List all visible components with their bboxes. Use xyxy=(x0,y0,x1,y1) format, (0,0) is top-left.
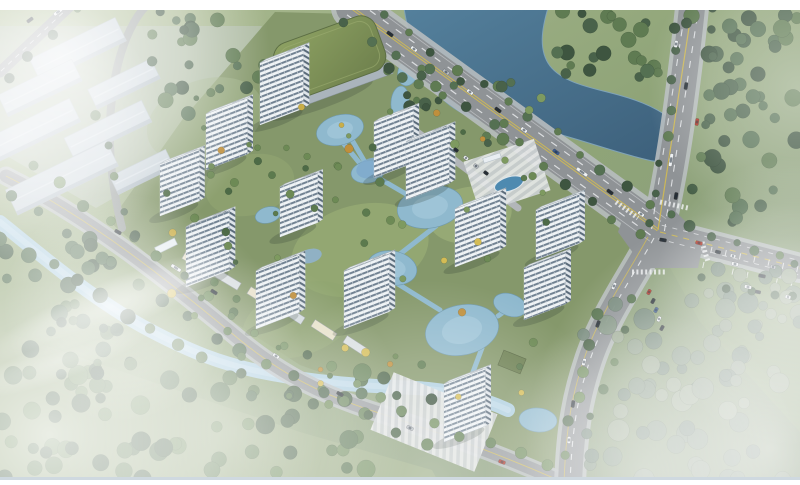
tower-side-windows xyxy=(318,169,323,222)
tree xyxy=(304,153,311,160)
tree xyxy=(636,229,646,239)
tree xyxy=(540,190,546,196)
frame-bottom-strip xyxy=(0,477,800,480)
tree xyxy=(668,211,676,219)
tree xyxy=(505,98,513,106)
frame-bottom-band xyxy=(0,480,800,485)
tree xyxy=(539,162,548,171)
tree xyxy=(636,55,646,65)
tree xyxy=(339,123,344,128)
tree xyxy=(414,79,424,89)
tree xyxy=(622,181,633,192)
tower-side-windows xyxy=(565,249,571,305)
tree xyxy=(583,18,598,33)
tree xyxy=(403,91,411,99)
tree xyxy=(507,78,516,87)
tower-side-windows xyxy=(500,188,506,250)
tree xyxy=(311,205,318,212)
frame-top-band xyxy=(0,0,800,10)
tree xyxy=(480,136,485,141)
tree xyxy=(384,63,395,74)
tree xyxy=(376,178,385,187)
tree xyxy=(369,144,377,152)
tree xyxy=(521,175,527,181)
tree xyxy=(345,144,354,153)
tower-side-windows xyxy=(449,122,455,184)
tree xyxy=(283,145,289,151)
tree xyxy=(583,64,596,77)
tree xyxy=(474,238,481,245)
tree xyxy=(621,32,637,48)
tree xyxy=(497,133,509,145)
tree xyxy=(298,104,305,111)
rendering-canvas xyxy=(0,0,800,485)
tree xyxy=(578,9,587,18)
tree xyxy=(594,165,605,176)
tree xyxy=(361,239,368,246)
tree xyxy=(255,145,261,151)
tree xyxy=(332,197,338,203)
tree xyxy=(655,160,662,167)
tree xyxy=(286,190,294,198)
tree xyxy=(430,81,441,92)
tree xyxy=(398,221,406,229)
tree xyxy=(480,80,488,88)
tree xyxy=(596,46,611,61)
tree xyxy=(392,51,401,60)
tree xyxy=(560,179,571,190)
tree xyxy=(576,151,583,158)
tree xyxy=(489,119,499,129)
tree xyxy=(346,133,351,138)
tree xyxy=(225,188,232,195)
tree xyxy=(405,29,412,36)
tree xyxy=(230,178,239,187)
tree xyxy=(567,61,575,69)
tree xyxy=(397,72,407,82)
tree xyxy=(543,219,550,226)
tree xyxy=(400,276,407,283)
tree xyxy=(588,197,597,206)
tree xyxy=(335,163,342,170)
tree xyxy=(274,255,280,261)
vehicle-glass xyxy=(675,194,678,197)
tower-side-windows xyxy=(303,43,309,109)
tree xyxy=(646,200,655,209)
tree xyxy=(461,102,471,112)
tree xyxy=(367,37,377,47)
tree xyxy=(500,119,509,128)
tree xyxy=(502,157,509,164)
tree xyxy=(554,128,561,135)
tree xyxy=(552,47,564,59)
tree xyxy=(537,94,546,103)
tree xyxy=(422,103,430,111)
tree xyxy=(303,165,309,171)
tree xyxy=(426,48,435,57)
tree xyxy=(452,65,463,76)
tree xyxy=(273,211,278,216)
aerial-site-rendering xyxy=(0,0,800,485)
tree xyxy=(464,207,470,213)
tree xyxy=(652,190,660,198)
tree xyxy=(561,68,571,78)
tree xyxy=(529,172,537,180)
tree xyxy=(496,81,507,92)
tree xyxy=(417,71,427,81)
tree xyxy=(433,110,440,117)
tree xyxy=(387,109,393,115)
tree xyxy=(439,92,447,100)
tree xyxy=(484,255,491,262)
tree xyxy=(460,129,465,134)
tree xyxy=(441,257,447,263)
tree xyxy=(450,140,459,149)
tree xyxy=(645,219,653,227)
tree xyxy=(413,97,419,103)
tree xyxy=(515,138,523,146)
tree xyxy=(386,216,395,225)
tree xyxy=(254,157,262,165)
tree xyxy=(268,171,275,178)
tree xyxy=(380,11,388,19)
tree xyxy=(362,209,370,217)
tree xyxy=(484,139,492,147)
tree xyxy=(339,18,348,27)
tree xyxy=(633,22,648,37)
tree xyxy=(525,106,533,114)
tree xyxy=(450,82,458,90)
tree xyxy=(607,12,616,21)
tower-side-windows xyxy=(579,190,585,244)
tree xyxy=(424,64,435,75)
tree xyxy=(607,215,616,224)
